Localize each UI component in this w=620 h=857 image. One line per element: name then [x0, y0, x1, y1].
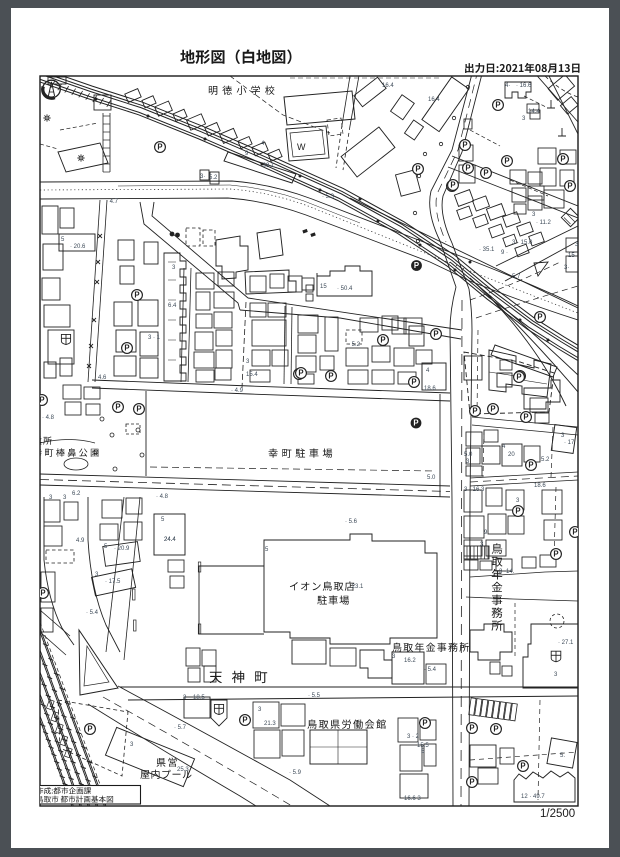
svg-text:P: P — [414, 261, 419, 270]
svg-text:· 4.9: · 4.9 — [231, 388, 244, 394]
svg-text:12 · 49.7: 12 · 49.7 — [521, 794, 545, 800]
svg-text:· 27.1: · 27.1 — [558, 640, 574, 646]
svg-text:P: P — [523, 413, 528, 422]
svg-text:5.2: 5.2 — [209, 175, 218, 181]
svg-text:3·: 3· — [564, 265, 569, 271]
svg-text:P: P — [124, 344, 129, 353]
svg-text:· 5.7: · 5.7 — [174, 725, 187, 731]
svg-text:16.4: 16.4 — [382, 83, 394, 89]
svg-text:4·: 4· — [505, 83, 510, 89]
svg-text:· 20.6: · 20.6 — [70, 244, 86, 250]
svg-text:· 5.6: · 5.6 — [345, 519, 358, 525]
svg-text:15.4: 15.4 — [246, 372, 258, 378]
svg-text:P: P — [157, 143, 162, 152]
svg-text:5.: 5. — [560, 753, 565, 759]
svg-text:4.6: 4.6 — [98, 375, 107, 381]
svg-text:P: P — [493, 725, 498, 734]
svg-text:9 ·: 9 · — [501, 250, 508, 256]
svg-text:· 5.4: · 5.4 — [424, 667, 437, 673]
svg-text:P: P — [472, 407, 477, 416]
svg-text:P: P — [520, 762, 525, 771]
svg-text:16.4: 16.4 — [428, 97, 440, 103]
svg-text:P: P — [490, 405, 495, 414]
svg-text:W: W — [297, 142, 306, 152]
svg-text:P: P — [483, 169, 488, 178]
svg-text:3 ·14.: 3 ·14. — [499, 569, 515, 575]
svg-text:· 5.5: · 5.5 — [308, 693, 321, 699]
svg-text:P: P — [136, 405, 141, 414]
svg-text:P: P — [560, 155, 565, 164]
svg-text:P: P — [528, 461, 533, 470]
svg-text:P: P — [450, 181, 455, 190]
svg-text:24.4: 24.4 — [164, 537, 176, 543]
svg-text:3 · 16.3: 3 · 16.3 — [464, 487, 485, 493]
svg-text:P: P — [469, 778, 474, 787]
svg-text:P: P — [115, 403, 120, 412]
svg-text:P: P — [328, 372, 333, 381]
svg-text:P: P — [537, 313, 542, 322]
svg-text:25.3: 25.3 — [177, 767, 189, 773]
svg-text:· 5.9: · 5.9 — [289, 770, 302, 776]
svg-text:P: P — [242, 716, 247, 725]
svg-text:· 5.4: · 5.4 — [86, 610, 99, 616]
svg-text:P: P — [572, 528, 577, 537]
svg-text:· 50.4: · 50.4 — [337, 286, 353, 292]
svg-text:P: P — [298, 369, 303, 378]
svg-text:16.6 3: 16.6 3 — [404, 796, 421, 802]
svg-text:14.4: 14.4 — [528, 109, 540, 115]
svg-text:· 4.7: · 4.7 — [106, 199, 119, 205]
svg-text:18.5: 18.5 — [193, 695, 205, 701]
svg-text:6.4: 6.4 — [168, 303, 177, 309]
svg-text:P: P — [553, 550, 558, 559]
svg-text:P: P — [87, 725, 92, 734]
svg-text:5.2: 5.2 — [541, 457, 550, 463]
svg-text:· 5.3: · 5.3 — [322, 194, 335, 200]
svg-text:P: P — [413, 419, 418, 428]
svg-text:16.2: 16.2 — [404, 658, 416, 664]
svg-text:20: 20 — [508, 452, 515, 458]
svg-text:5.0: 5.0 — [464, 452, 473, 458]
svg-text:5.0: 5.0 — [427, 475, 436, 481]
svg-text:P: P — [40, 589, 45, 598]
svg-text:P: P — [567, 182, 572, 191]
svg-text:· 11.2: · 11.2 — [536, 220, 552, 226]
svg-text:P: P — [462, 141, 467, 150]
svg-text:· 16.6: · 16.6 — [516, 83, 532, 89]
svg-text:· 20.9: · 20.9 — [114, 546, 130, 552]
svg-text:· 29.1: · 29.1 — [259, 163, 275, 169]
svg-text:1/2500: 1/2500 — [540, 808, 575, 820]
svg-text:P: P — [415, 165, 420, 174]
svg-text:P: P — [422, 719, 427, 728]
svg-text:P: P — [515, 507, 520, 516]
svg-text:P: P — [495, 101, 500, 110]
svg-text:18.6: 18.6 — [424, 386, 436, 392]
svg-text:3·: 3· — [200, 174, 205, 180]
svg-text:15: 15 — [568, 253, 575, 259]
svg-text:3 · 15.0: 3 · 15.0 — [512, 240, 533, 246]
svg-text:4.9: 4.9 — [76, 538, 85, 544]
svg-text:· 4.8: · 4.8 — [42, 415, 55, 421]
svg-text:18.6: 18.6 — [534, 483, 546, 489]
svg-text:· 17.5: · 17.5 — [105, 579, 121, 585]
svg-text:P: P — [433, 330, 438, 339]
svg-text:P: P — [469, 724, 474, 733]
svg-text:· 17: · 17 — [564, 440, 575, 446]
svg-text:21.3: 21.3 — [264, 721, 276, 727]
svg-text:· 5.2: · 5.2 — [348, 342, 361, 348]
svg-text:P: P — [504, 157, 509, 166]
svg-text:P: P — [380, 336, 385, 345]
svg-text:15: 15 — [320, 284, 327, 290]
svg-text:· 35.1: · 35.1 — [479, 247, 495, 253]
svg-text:P: P — [465, 164, 470, 173]
svg-text:· 23.1: · 23.1 — [348, 584, 364, 590]
svg-text:5.7: 5.7 — [512, 274, 521, 280]
svg-text:P: P — [134, 291, 139, 300]
svg-text:6.2: 6.2 — [72, 491, 81, 497]
svg-text:· 4.8: · 4.8 — [156, 494, 169, 500]
svg-text:3 · 2: 3 · 2 — [407, 734, 420, 740]
svg-text:P: P — [516, 373, 521, 382]
svg-text:P: P — [39, 396, 44, 405]
svg-text:P: P — [411, 378, 416, 387]
svg-text:3 · 1: 3 · 1 — [148, 335, 161, 341]
